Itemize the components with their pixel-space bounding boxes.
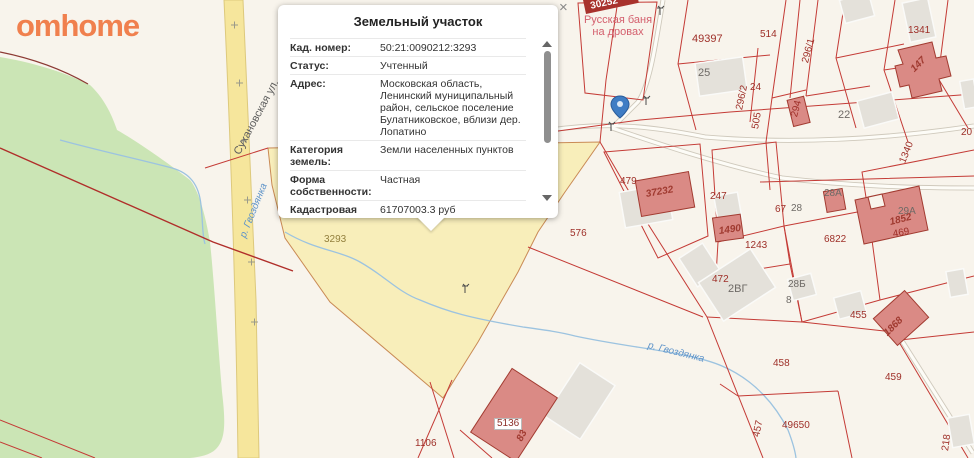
field-label: Кад. номер: [290,42,380,54]
parcel-info-popup: Земельный участок Кад. номер: 50:21:0090… [278,5,558,218]
building-number-label: 28 [791,204,802,214]
parcel-label: 514 [760,30,777,40]
parcel-label: 49397 [692,34,723,45]
popup-row-kad-nomer: Кад. номер: 50:21:0090212:3293 [290,38,526,56]
popup-title: Земельный участок [278,5,558,36]
field-value: 50:21:0090212:3293 [380,42,476,54]
parcel-label: 576 [570,229,587,239]
popup-row-cost: Кадастровая стоимость: 61707003.3 руб [290,200,526,218]
field-label: Категория земель: [290,144,380,168]
parcel-label: 20 [961,128,972,138]
parcel-label: 1106 [415,439,437,449]
poi-label-line1: Русская баня [578,14,658,26]
building-number-label: 28А [824,189,842,199]
parcel-label: 24 [750,83,761,93]
popup-pointer-tail [416,216,446,231]
poi-label-line2: на дровах [578,26,658,38]
parcel-label: 459 [885,373,902,383]
building-cad-label: 5136 [494,418,522,430]
close-icon[interactable]: × [559,0,568,15]
field-value: Московская область, Ленинский муниципаль… [380,78,526,138]
popup-row-ownership: Форма собственности: Частная [290,170,526,200]
building-number-label: 28Б [788,280,806,290]
app-window: 30252 49397 514 296/1 296/2 294 505 24 1… [0,0,974,458]
field-value: Частная [380,174,420,198]
parcel-label: 472 [712,275,729,285]
parcel-label: 458 [773,359,790,369]
parcel-label: 247 [710,192,727,202]
scroll-up-arrow-icon[interactable] [542,41,552,47]
parcel-label: 67 [775,205,786,215]
field-label: Кадастровая стоимость: [290,204,380,218]
field-label: Статус: [290,60,380,72]
field-label: Форма собственности: [290,174,380,198]
omhome-logo[interactable]: omhome [16,8,139,44]
parcel-label: 49650 [782,421,810,431]
selected-building-banner: 30252 [583,0,639,14]
parcel-label: 455 [850,311,867,321]
popup-row-category: Категория земель: Земли населенных пункт… [290,140,526,170]
field-value: Учтенный [380,60,428,72]
scroll-down-arrow-icon[interactable] [542,195,552,201]
building-number-label: 2ВГ [728,284,747,295]
popup-rows: Кад. номер: 50:21:0090212:3293 Статус: У… [290,38,526,218]
parcel-label: 1243 [745,241,767,251]
forest-area [0,57,224,458]
field-value: Земли населенных пунктов [380,144,514,168]
parcel-label: 479 [620,177,637,187]
selected-parcel-label: 3293 [324,235,346,245]
building-number-label: 8 [786,296,792,306]
parcel-label: 6822 [824,235,846,245]
scrollbar-thumb[interactable] [544,51,551,143]
building-number-label: 25 [698,68,710,79]
parcel-label: 1341 [908,26,930,36]
building-number-label: 22 [838,110,850,121]
poi-label: Русская баня на дровах [578,14,658,38]
popup-row-status: Статус: Учтенный [290,56,526,74]
popup-row-address: Адрес: Московская область, Ленинский мун… [290,74,526,140]
field-label: Адрес: [290,78,380,138]
